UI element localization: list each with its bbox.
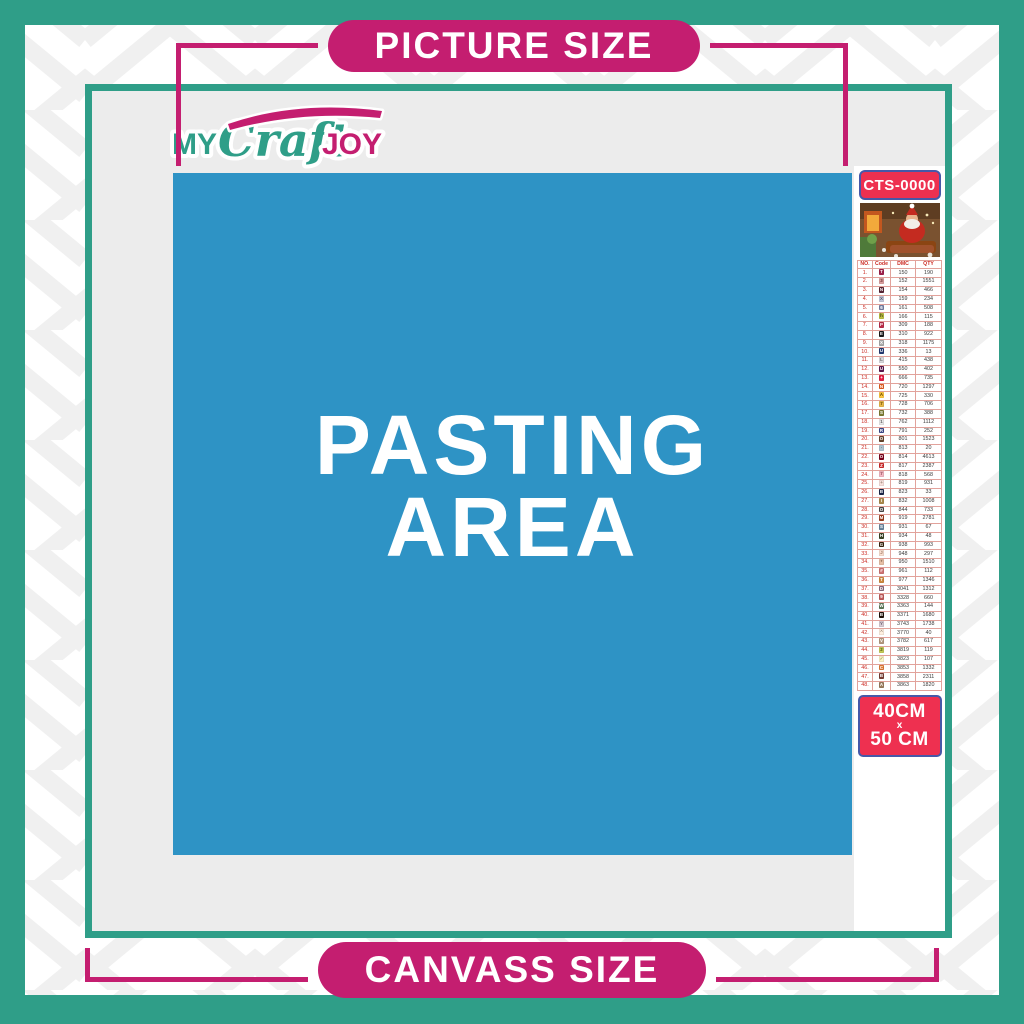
color-chart-table: NO.CodeDMCQTY 1.T1501902.315215513.N1544… <box>857 260 942 691</box>
color-chart-row: 45.✓3823107 <box>858 655 942 664</box>
artwork-thumbnail <box>860 203 940 257</box>
color-chart-row: 36.T9771346 <box>858 576 942 585</box>
color-chart-row: 42.^377040 <box>858 629 942 638</box>
color-chart-row: 21.·81320 <box>858 445 942 454</box>
code-chip: G <box>879 542 885 548</box>
code-chip: Y <box>879 621 885 627</box>
color-chart-row: 13.+666735 <box>858 374 942 383</box>
color-chart-row: 22.O8144613 <box>858 453 942 462</box>
pasting-line2: AREA <box>315 486 710 568</box>
bracket-bottom-right-horizontal <box>716 977 939 982</box>
pasting-line1: PASTING <box>315 404 710 486</box>
color-chart-row: 3.N154466 <box>858 287 942 296</box>
color-chart-row: 18.17621112 <box>858 418 942 427</box>
color-chart-row: 43.V3782617 <box>858 638 942 647</box>
color-chart-row: 30.S93167 <box>858 524 942 533</box>
code-chip: 3 <box>879 278 885 284</box>
color-chart-row: 41.Y37431738 <box>858 620 942 629</box>
pasting-area-label: PASTING AREA <box>315 404 710 569</box>
product-code: CTS-0000 <box>863 177 935 194</box>
canvass-size-banner: CANVASS SIZE <box>318 942 706 998</box>
poster: PASTING AREA MY Craft JOY CTS-0000 <box>0 0 1024 1024</box>
code-chip: 1 <box>879 419 885 425</box>
code-chip: C <box>879 665 885 671</box>
column-header: Code <box>873 261 891 269</box>
size-bottom: 50 CM <box>870 730 928 749</box>
bracket-top-right-vertical <box>843 43 848 166</box>
code-chip: Z <box>879 463 885 469</box>
code-chip: O <box>879 436 885 442</box>
color-chart-row: 16.7728706 <box>858 401 942 410</box>
color-chart-row: 23.Z8172387 <box>858 462 942 471</box>
code-chip: M <box>879 515 885 521</box>
color-chart-row: 26.B82333 <box>858 488 942 497</box>
code-chip: E <box>879 331 885 337</box>
color-chart-row: 19.R791252 <box>858 427 942 436</box>
color-chart-row: 33.J948297 <box>858 550 942 559</box>
code-chip: X <box>879 340 885 346</box>
code-chip: U <box>879 366 885 372</box>
code-chip: B <box>879 612 885 618</box>
canvass-size-label: CANVASS SIZE <box>365 949 660 991</box>
code-chip: U <box>879 348 885 354</box>
code-chip: N <box>879 384 885 390</box>
code-chip: W <box>879 603 885 609</box>
code-chip: B <box>879 489 885 495</box>
info-strip: CTS-0000 NO.CodeDMCQTY <box>854 166 945 931</box>
column-header: DMC <box>891 261 916 269</box>
color-chart-row: 29.M9192781 <box>858 515 942 524</box>
color-chart-row: 24.7818568 <box>858 471 942 480</box>
color-chart-row: 2.31521551 <box>858 278 942 287</box>
color-chart-row: 15.A725330 <box>858 392 942 401</box>
code-chip: X <box>879 296 885 302</box>
code-chip: J <box>879 550 885 556</box>
bracket-top-right-horizontal <box>710 43 848 48</box>
color-chart-row: 17.S732388 <box>858 409 942 418</box>
size-top: 40CM <box>873 702 926 721</box>
color-chart-row: 40.B33711680 <box>858 611 942 620</box>
code-chip: P <box>879 322 885 328</box>
color-chart-row: 35.#961112 <box>858 568 942 577</box>
code-chip: D <box>879 586 885 592</box>
color-chart-row: 37.D30411312 <box>858 585 942 594</box>
code-chip: L <box>879 357 885 363</box>
color-chart-row: 32.G938993 <box>858 541 942 550</box>
color-chart-row: 31.H93448 <box>858 532 942 541</box>
color-chart-row: 47.B38582311 <box>858 673 942 682</box>
color-chart-row: 44.23819119 <box>858 647 942 656</box>
color-chart-row: 38.93328660 <box>858 594 942 603</box>
code-chip: ✓ <box>879 656 885 662</box>
color-chart-row: 5.6161508 <box>858 304 942 313</box>
picture-size-label: PICTURE SIZE <box>375 25 654 67</box>
color-chart-row: 39.W3363144 <box>858 603 942 612</box>
code-chip: 6 <box>879 305 885 311</box>
code-chip: O <box>879 507 885 513</box>
color-chart-row: 20.O8011523 <box>858 436 942 445</box>
color-chart-row: 10.U33613 <box>858 348 942 357</box>
bracket-bottom-left-horizontal <box>85 977 308 982</box>
bracket-top-left-horizontal <box>176 43 318 48</box>
code-chip: h <box>879 313 885 319</box>
color-chart-row: 34.*9501510 <box>858 559 942 568</box>
product-code-badge: CTS-0000 <box>859 170 941 200</box>
brand-logo: MY Craft JOY <box>168 96 400 172</box>
code-chip: 7 <box>879 401 885 407</box>
code-chip: S <box>879 410 885 416</box>
logo-joy: JOY <box>322 128 382 161</box>
color-chart-row: 12.U550402 <box>858 366 942 375</box>
code-chip: B <box>879 673 885 679</box>
color-chart-row: 46.C38531332 <box>858 664 942 673</box>
color-chart-row: 14.N7201297 <box>858 383 942 392</box>
color-chart-row: 7.P309188 <box>858 322 942 331</box>
code-chip: O <box>879 454 885 460</box>
color-chart-row: 4.X159234 <box>858 295 942 304</box>
pasting-area: PASTING AREA <box>173 173 852 855</box>
color-chart-row: 28.O844733 <box>858 506 942 515</box>
column-header: QTY <box>916 261 942 269</box>
color-chart-row: 6.h166115 <box>858 313 942 322</box>
canvas-size-badge: 40CM x 50 CM <box>858 695 942 757</box>
color-chart-row: 11.L415438 <box>858 357 942 366</box>
color-chart-row: 25.+819931 <box>858 480 942 489</box>
code-chip: S <box>879 524 885 530</box>
color-chart-row: 48.A38631820 <box>858 682 942 691</box>
color-chart-row: 8.E310922 <box>858 330 942 339</box>
code-chip: A <box>879 392 885 398</box>
code-chip: ^ <box>879 629 885 635</box>
color-chart-header-row: NO.CodeDMCQTY <box>858 261 942 269</box>
code-chip: 9 <box>879 594 885 600</box>
column-header: NO. <box>858 261 873 269</box>
code-chip: 7 <box>879 471 885 477</box>
code-chip: I <box>879 498 885 504</box>
bracket-bottom-right-vertical <box>934 948 939 982</box>
code-chip: * <box>879 559 885 565</box>
code-chip: R <box>879 428 885 434</box>
code-chip: T <box>879 577 885 583</box>
code-chip: A <box>879 682 885 688</box>
code-chip: + <box>879 480 885 486</box>
color-chart-row: 9.X3181175 <box>858 339 942 348</box>
code-chip: N <box>879 287 885 293</box>
code-chip: + <box>879 375 885 381</box>
bracket-top-left-vertical <box>176 43 181 166</box>
code-chip: 2 <box>879 647 885 653</box>
code-chip: V <box>879 638 885 644</box>
code-chip: · <box>879 445 885 451</box>
code-chip: # <box>879 568 885 574</box>
picture-size-banner: PICTURE SIZE <box>328 20 700 72</box>
color-chart-row: 1.T150190 <box>858 269 942 278</box>
code-chip: H <box>879 533 885 539</box>
color-chart-row: 27.I8321008 <box>858 497 942 506</box>
code-chip: T <box>879 269 885 275</box>
